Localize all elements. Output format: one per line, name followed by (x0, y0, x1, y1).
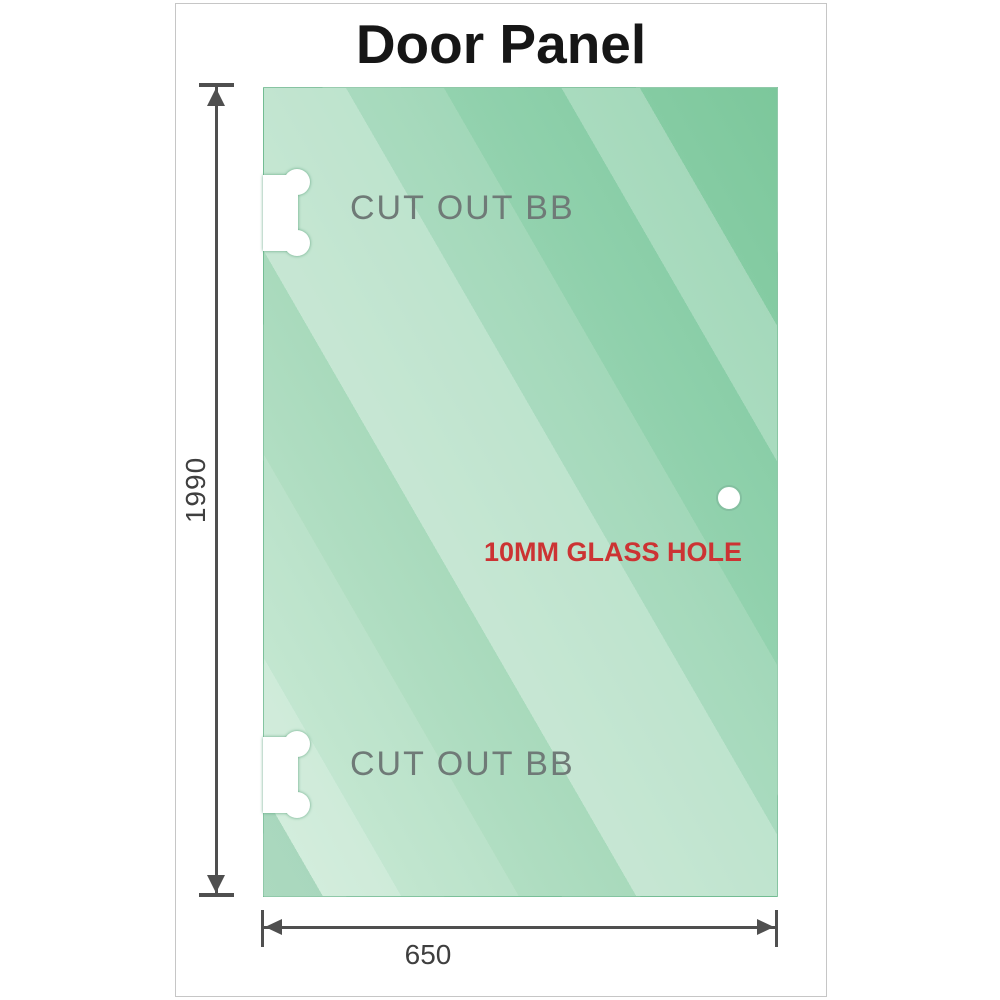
arrow-down-icon (207, 875, 225, 893)
cutout-lobe-lower (284, 792, 310, 818)
hinge-cutout-bottom (263, 730, 311, 820)
height-dim-end-bar-bottom (199, 893, 234, 897)
hinge-cutout-top (263, 168, 311, 258)
glass-hole-icon (716, 485, 742, 511)
arrow-right-icon (757, 919, 774, 935)
glass-panel: CUT OUT BB CUT OUT BB 10MM GLASS HOLE (263, 87, 778, 897)
cutout-lobe-lower (284, 230, 310, 256)
width-dim-end-tick-right (775, 910, 778, 947)
door-panel-diagram: Door Panel CUT OUT BB CUT OUT BB 10MM GL… (0, 0, 1000, 1000)
cutout-lobe-upper (284, 169, 310, 195)
cutout-label-top: CUT OUT BB (350, 188, 575, 228)
glass-hole-label: 10MM GLASS HOLE (484, 536, 742, 568)
height-dim-line (215, 87, 218, 893)
arrow-up-icon (207, 88, 225, 106)
width-dim-line (264, 926, 775, 929)
width-dim-value: 650 (405, 939, 452, 971)
cutout-lobe-upper (284, 731, 310, 757)
page-title: Door Panel (176, 12, 826, 76)
arrow-left-icon (265, 919, 282, 935)
cutout-label-bottom: CUT OUT BB (350, 744, 575, 784)
height-dim-value: 1990 (180, 457, 212, 523)
